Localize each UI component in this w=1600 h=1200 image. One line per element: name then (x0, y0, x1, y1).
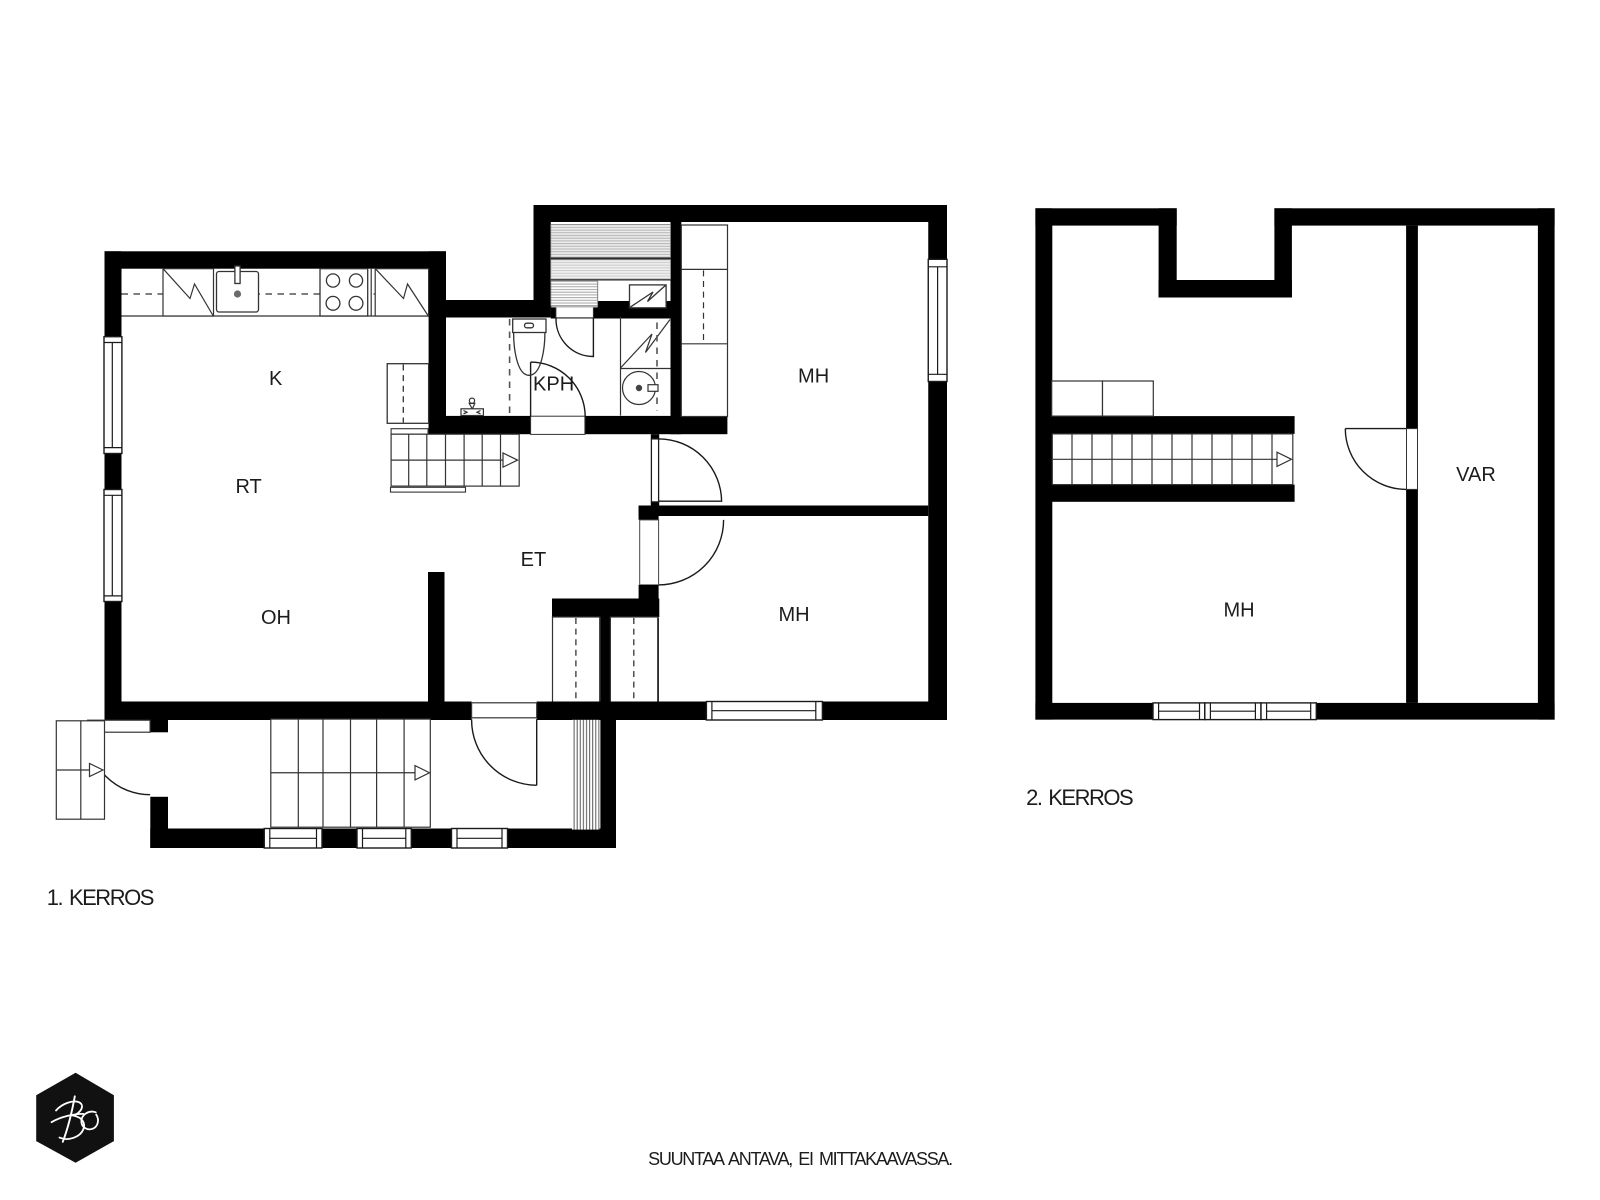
svg-text:MH: MH (1223, 599, 1254, 621)
svg-text:1. KERROS: 1. KERROS (47, 885, 154, 910)
svg-text:K: K (269, 368, 283, 390)
svg-text:2. KERROS: 2. KERROS (1026, 785, 1133, 810)
svg-text:ET: ET (521, 549, 547, 571)
svg-text:RT: RT (235, 476, 261, 498)
svg-text:VAR: VAR (1456, 464, 1496, 486)
svg-text:MH: MH (778, 604, 809, 626)
svg-text:MH: MH (798, 365, 829, 387)
svg-text:OH: OH (261, 607, 291, 629)
svg-text:SUUNTAA ANTAVA, EI MITTAKAAVAS: SUUNTAA ANTAVA, EI MITTAKAAVASSA. (648, 1149, 952, 1169)
svg-text:KPH: KPH (533, 374, 574, 396)
